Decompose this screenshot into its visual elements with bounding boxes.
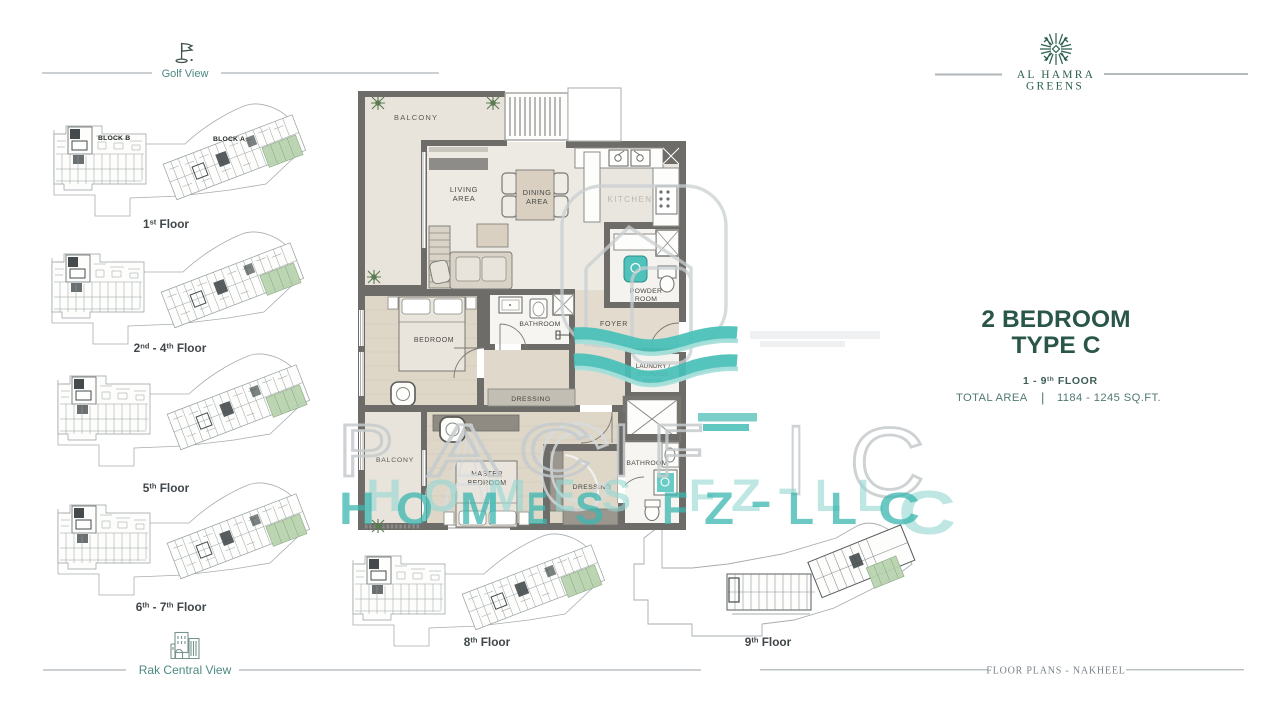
svg-text:BATHROOM: BATHROOM	[519, 321, 560, 328]
svg-text:1 - 9th FLOOR: 1 - 9th FLOOR	[1023, 375, 1098, 387]
svg-text:TYPE C: TYPE C	[1011, 332, 1100, 359]
svg-text:F: F	[662, 483, 688, 534]
svg-text:2 BEDROOM: 2 BEDROOM	[981, 306, 1130, 333]
svg-text:L: L	[788, 483, 814, 534]
svg-text:E: E	[527, 483, 548, 534]
svg-text:Rak Central View: Rak Central View	[139, 663, 232, 677]
svg-text:C: C	[878, 483, 920, 534]
svg-text:S: S	[575, 483, 604, 534]
svg-text:GREENS: GREENS	[1026, 81, 1084, 93]
svg-text:AREA: AREA	[453, 194, 476, 203]
svg-text:TOTAL AREA: TOTAL AREA	[956, 392, 1028, 404]
svg-text:|: |	[1041, 390, 1044, 405]
svg-text:Z: Z	[704, 483, 734, 534]
svg-text:AL HAMRA: AL HAMRA	[1017, 69, 1095, 81]
svg-text:1184 - 1245 SQ.FT.: 1184 - 1245 SQ.FT.	[1057, 392, 1161, 404]
svg-text:S: S	[602, 470, 631, 521]
svg-text:H: H	[339, 483, 375, 534]
svg-text:L: L	[830, 483, 857, 534]
svg-text:ROOM: ROOM	[635, 296, 657, 303]
svg-text:FLOOR PLANS - NAKHEEL: FLOOR PLANS - NAKHEEL	[986, 666, 1125, 677]
svg-text:O: O	[396, 483, 433, 534]
svg-text:BLOCK A: BLOCK A	[213, 136, 245, 143]
svg-text:E: E	[554, 470, 575, 521]
svg-text:DINING: DINING	[523, 188, 552, 197]
svg-text:BALCONY: BALCONY	[394, 113, 438, 122]
svg-text:BLOCK B: BLOCK B	[98, 135, 130, 142]
svg-text:BEDROOM: BEDROOM	[414, 337, 454, 344]
svg-text:-: -	[750, 475, 772, 526]
svg-text:LIVING: LIVING	[450, 185, 478, 194]
svg-text:M: M	[460, 483, 499, 534]
svg-text:FOYER: FOYER	[600, 321, 628, 328]
svg-text:KITCHEN: KITCHEN	[608, 195, 653, 204]
svg-text:AREA: AREA	[526, 197, 548, 206]
svg-text:POWDER: POWDER	[630, 288, 662, 295]
svg-text:Golf View: Golf View	[162, 68, 209, 80]
